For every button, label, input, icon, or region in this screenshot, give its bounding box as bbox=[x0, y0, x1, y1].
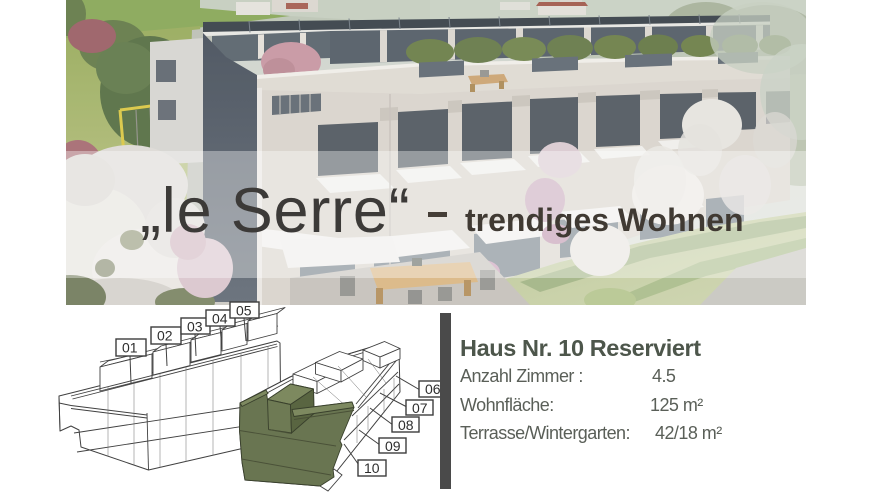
svg-text:07: 07 bbox=[412, 400, 428, 416]
svg-text:05: 05 bbox=[236, 303, 252, 319]
svg-text:„le Serre“: „le Serre“ bbox=[140, 176, 411, 246]
svg-text:Terrasse/Wintergarten:: Terrasse/Wintergarten: bbox=[460, 423, 630, 443]
svg-text:42/18 m²: 42/18 m² bbox=[655, 423, 722, 443]
svg-text:Wohnfläche:: Wohnfläche: bbox=[460, 395, 554, 415]
svg-text:03: 03 bbox=[187, 319, 203, 335]
svg-text:4.5: 4.5 bbox=[652, 366, 676, 386]
svg-text:trendiges Wohnen: trendiges Wohnen bbox=[465, 202, 744, 238]
svg-text:08: 08 bbox=[398, 417, 414, 433]
svg-text:01: 01 bbox=[122, 340, 138, 356]
svg-text:06: 06 bbox=[425, 381, 441, 397]
svg-text:09: 09 bbox=[385, 438, 401, 454]
svg-text:Anzahl Zimmer :: Anzahl Zimmer : bbox=[460, 366, 583, 386]
svg-text:10: 10 bbox=[364, 460, 380, 476]
svg-text:04: 04 bbox=[212, 311, 228, 327]
svg-text:02: 02 bbox=[157, 328, 173, 344]
svg-text:125 m²: 125 m² bbox=[650, 395, 703, 415]
svg-text:Haus Nr. 10 Reserviert: Haus Nr. 10 Reserviert bbox=[460, 335, 701, 361]
